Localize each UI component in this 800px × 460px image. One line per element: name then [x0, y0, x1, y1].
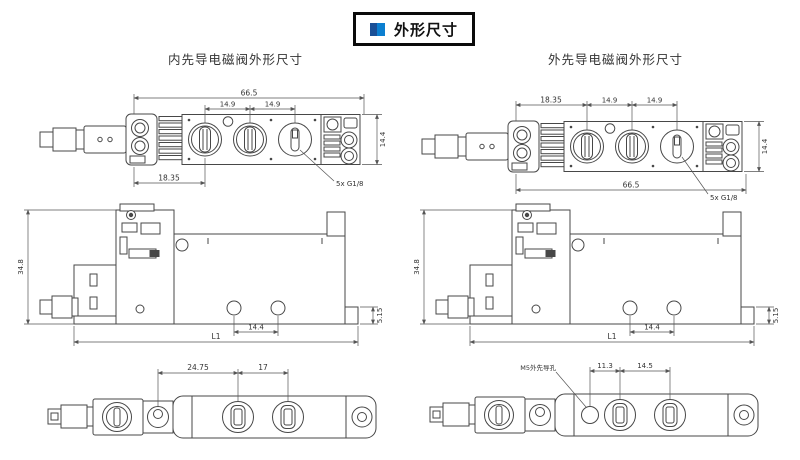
valve-top-view: [422, 121, 742, 172]
dim-hole-pitch: 14.4: [644, 324, 660, 332]
dim-overall-width: 66.5: [623, 181, 640, 190]
left-column-header: 内先导电磁阀外形尺寸: [168, 49, 303, 68]
dim-left-offset: 18.35: [158, 174, 180, 183]
ports-thread-label: 5x G1/8: [336, 180, 364, 188]
dim-overall-width: 66.5: [241, 89, 258, 98]
dim-port-pitch-a: 14.9: [220, 101, 236, 109]
valve-bottom-view: [48, 396, 376, 438]
valve-side-view: [436, 204, 754, 324]
section-title-box: 外形尺寸: [353, 12, 475, 46]
dim-base-height: 5.15: [772, 308, 780, 324]
brand-square-icon: [370, 23, 385, 36]
external-pilot-side-view-drawing: 34.8 L1 14.4 5.15: [408, 192, 783, 352]
dim-length-l1: L1: [212, 332, 221, 341]
dim-overall-height: 34.8: [17, 259, 25, 275]
dim-body-height: 14.4: [379, 131, 387, 147]
page: 外形尺寸 内先导电磁阀外形尺寸 外先导电磁阀外形尺寸 66.5 14.9 14.…: [0, 0, 800, 460]
right-column-header: 外先导电磁阀外形尺寸: [548, 49, 683, 68]
dim-overall-height: 34.8: [413, 259, 421, 275]
dim-port-pitch-b: 14.9: [647, 97, 663, 105]
m5-pilot-hole: [582, 407, 599, 424]
dim-offset: 24.75: [187, 363, 209, 372]
external-pilot-top-view-drawing: 18.35 14.9 14.9 66.5 14.4 5x G1/8: [420, 90, 770, 205]
internal-pilot-side-view-drawing: 34.8 L1 14.4 5.15: [12, 192, 387, 352]
dim-base-height: 5.15: [376, 308, 384, 324]
dim-hole-pitch: 14.4: [248, 324, 264, 332]
internal-pilot-bottom-view-drawing: 24.75 17: [46, 358, 396, 460]
m5-pilot-hole-label: M5外先导孔: [520, 363, 556, 372]
valve-side-view: [40, 204, 358, 324]
brand-square-light: [377, 23, 385, 36]
dim-offset: 11.3: [597, 362, 613, 370]
dim-length-l1: L1: [608, 332, 617, 341]
dim-port-pitch: 14.5: [637, 362, 653, 370]
dim-port-pitch-a: 14.9: [602, 97, 618, 105]
external-pilot-bottom-view-drawing: 11.3 14.5 M5外先导孔: [428, 356, 778, 458]
valve-top-view: [40, 114, 360, 165]
dim-port-pitch: 17: [258, 363, 268, 372]
brand-square-dark: [370, 23, 377, 36]
dim-body-height: 14.4: [761, 138, 769, 154]
dim-port-pitch-b: 14.9: [265, 101, 281, 109]
dim-left-offset: 18.35: [540, 96, 562, 105]
internal-pilot-top-view-drawing: 66.5 14.9 14.9 18.35 14.4 5x G1/8: [38, 83, 388, 198]
section-title: 外形尺寸: [394, 19, 458, 40]
